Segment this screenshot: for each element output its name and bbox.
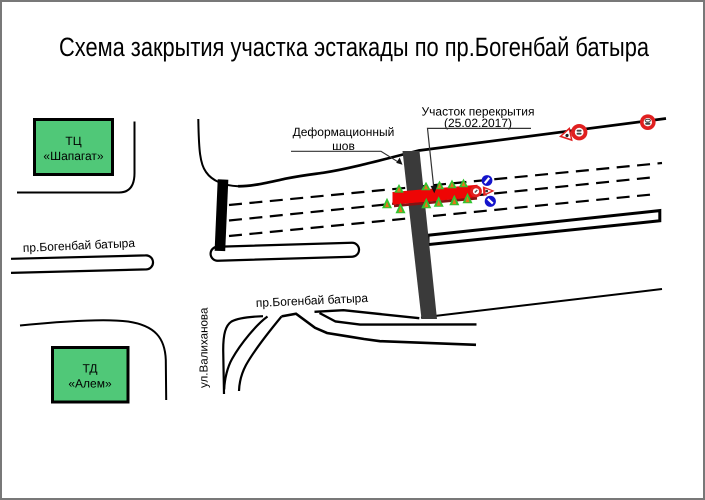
svg-text:ТД: ТД	[82, 362, 97, 376]
svg-text:Схема закрытия участка эстакад: Схема закрытия участка эстакады по пр.Бо…	[59, 32, 649, 62]
svg-text:«Шапагат»: «Шапагат»	[43, 149, 104, 163]
svg-text:ТЦ: ТЦ	[65, 134, 81, 148]
svg-text:«Алем»: «Алем»	[68, 377, 112, 391]
svg-text:ул.Валиханова: ул.Валиханова	[198, 307, 211, 388]
svg-text:Деформационный: Деформационный	[293, 125, 395, 139]
